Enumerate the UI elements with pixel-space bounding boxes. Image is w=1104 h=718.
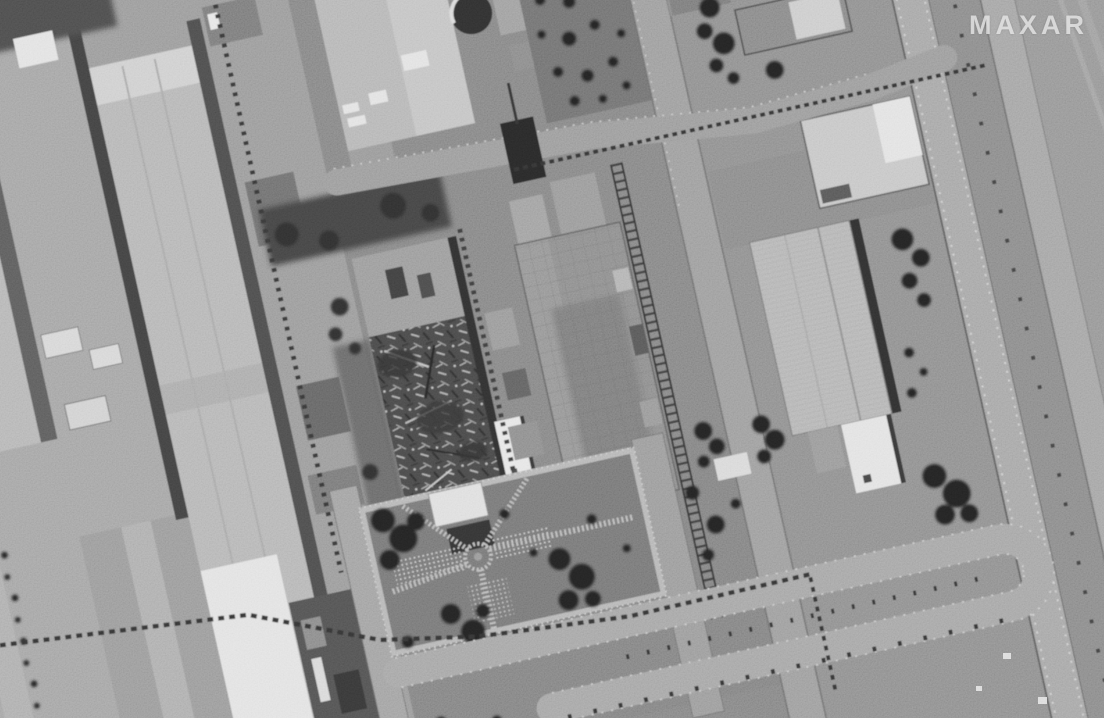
satellite-image: MAXAR — [0, 0, 1104, 718]
satellite-scene — [0, 0, 1104, 718]
film-grain-fine — [0, 0, 1104, 718]
maxar-watermark: MAXAR — [969, 10, 1088, 41]
